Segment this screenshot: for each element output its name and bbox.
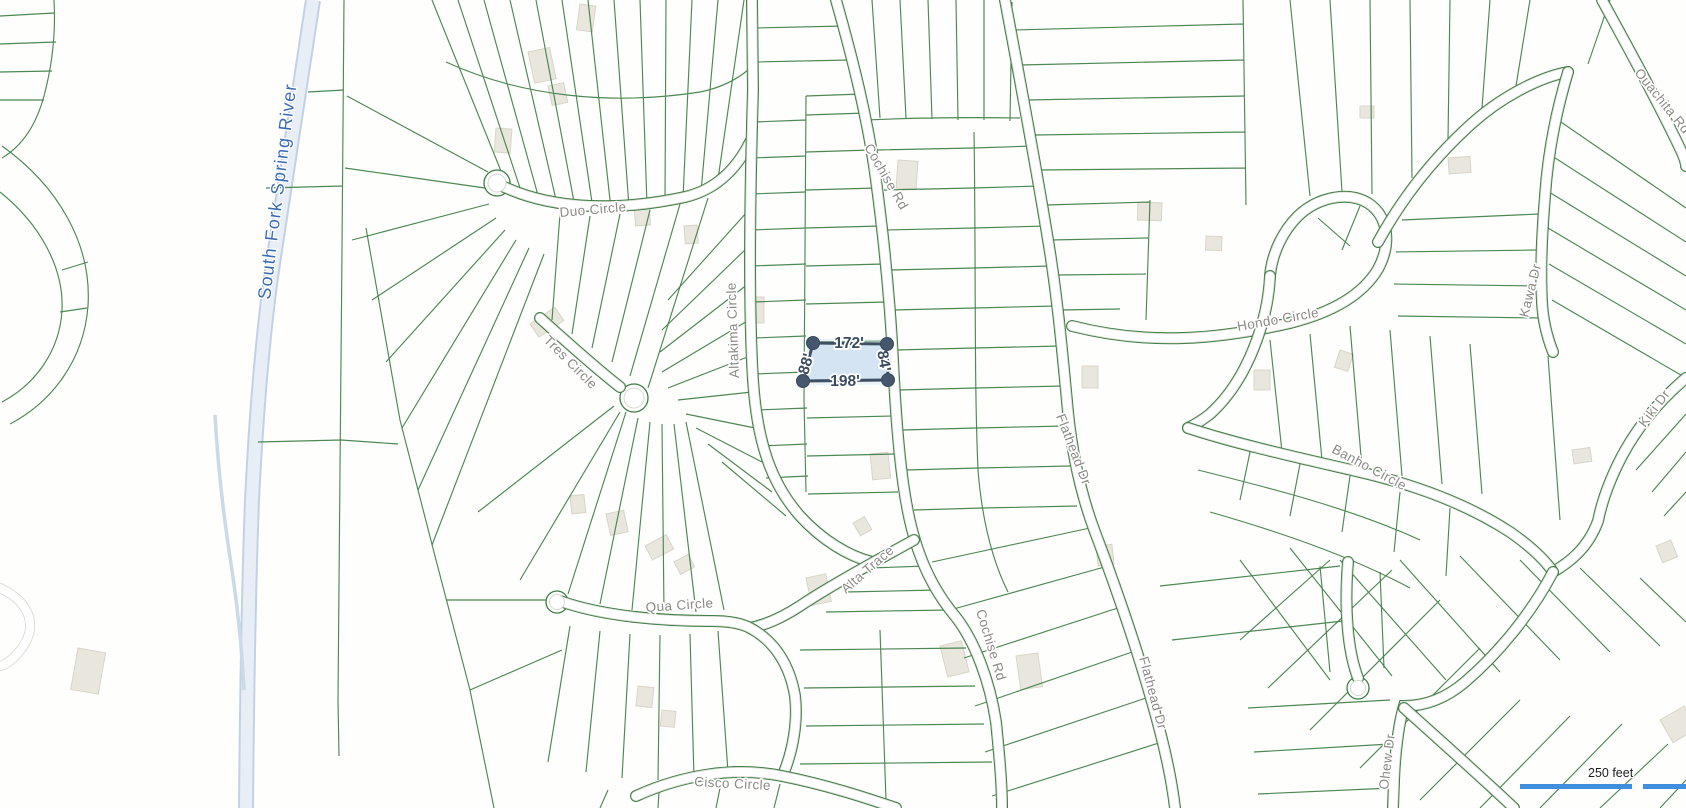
tributary	[215, 415, 244, 690]
vertex-handle-top-right[interactable]	[881, 338, 894, 351]
parcel-lines-left-arcs	[0, 146, 88, 424]
parcel-lines-topleft	[0, 0, 56, 158]
road-hondo-banho-connector	[1188, 276, 1270, 428]
road-kawa-dr	[1541, 72, 1568, 352]
road-ohew-north-spur	[1346, 562, 1369, 699]
road-label-cisco-circle: Cisco Circle	[694, 774, 771, 793]
map-canvas[interactable]: South Fork Spring River Duo Circle Cochi…	[0, 0, 1686, 808]
road-label-kiki-dr: Kiki Dr	[1635, 387, 1673, 430]
road-duo-circle	[484, 142, 750, 206]
road-hondo-circle	[1072, 197, 1386, 338]
road-left-loop	[0, 588, 30, 666]
parcel-lines-bulb-fan	[345, 96, 544, 545]
vertex-handle-top-left[interactable]	[807, 337, 820, 350]
parcel-lines-kawa-east	[1548, 120, 1686, 378]
parcel-lines-tres-south	[478, 406, 724, 612]
selection-overlay: 172' 198' 88' 84'	[795, 335, 894, 390]
vertex-handle-bottom-right[interactable]	[882, 374, 895, 387]
parcel-lines-hondo-fan	[1290, 0, 1610, 250]
vertex-handle-bottom-left[interactable]	[797, 375, 810, 388]
river-label: South Fork Spring River	[254, 82, 300, 300]
scale-bar-segment-1	[1520, 784, 1632, 789]
water-layer	[215, 0, 313, 808]
scale-bar-label: 250 feet	[1588, 766, 1634, 780]
measurement-label-right: 84'	[873, 349, 893, 373]
road-qua-circle	[546, 591, 796, 772]
parcel-lines-midline	[974, 132, 1008, 592]
road-label-flathead-dr-south: Flathead Dr	[1136, 655, 1170, 731]
scale-bar-segment-2	[1643, 784, 1686, 789]
parcel-lines-boundary	[366, 228, 494, 808]
road-label-altakima-circle: Altakima Circle	[724, 282, 742, 378]
scale-bar: 250 feet	[1520, 766, 1686, 789]
road-tres-circle	[540, 318, 648, 412]
road-label-ouachita-rd: Ouachita Rd	[1632, 65, 1686, 136]
parcel-lines-altakima-east	[751, 26, 898, 494]
parcel-lines-cochise-top	[865, 0, 1020, 121]
road-banho-circle	[1188, 428, 1553, 572]
measurement-label-bottom: 198'	[830, 373, 860, 390]
measurement-label-top: 172'	[834, 335, 864, 352]
road-label-qua-circle: Qua Circle	[645, 595, 714, 615]
